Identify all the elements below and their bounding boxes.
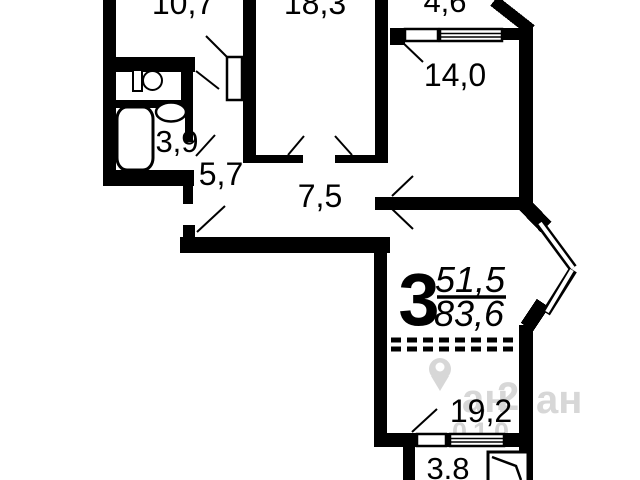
watermark-pin-icon: [436, 363, 445, 372]
floor-plan-canvas: ан 2 ан 010: [0, 0, 640, 480]
label-bedroom: 14,0: [424, 57, 486, 93]
bay-window-glass-core: [540, 223, 573, 268]
sink-icon: [156, 103, 186, 122]
wall-segment: [115, 57, 195, 72]
total-area: 83,6: [434, 293, 505, 334]
label-kitchen: 10,7: [152, 0, 214, 21]
wall-diagonal: [494, 1, 531, 30]
label-loggia-bottom: 3.8: [426, 451, 469, 480]
door-swing: [335, 136, 352, 155]
wall-segment: [519, 325, 533, 447]
wall-segment: [519, 38, 533, 210]
door-leaf: [227, 57, 242, 100]
bay-window: [539, 222, 573, 313]
label-hall-small: 5,7: [199, 156, 243, 192]
wall-segment: [181, 72, 193, 102]
door-swing: [391, 208, 413, 229]
window: [440, 29, 502, 41]
wall-segment: [387, 433, 417, 447]
wall-segment: [375, 197, 532, 210]
door-swing: [288, 136, 304, 155]
vent-window-icon: [488, 452, 528, 480]
wall-segment: [180, 237, 390, 253]
dashed-partition: [391, 340, 519, 349]
bay-window-glass-core: [547, 270, 572, 312]
watermark-text-right: ан: [536, 378, 582, 422]
label-bathroom: 3,9: [155, 124, 198, 159]
wall-segment: [374, 237, 387, 447]
door-swing: [392, 176, 413, 196]
bay-wall-stub: [527, 303, 543, 327]
wall-segment: [183, 225, 195, 239]
wall-segment: [103, 0, 116, 186]
wall-segment: [403, 447, 415, 480]
toilet-icon: [143, 71, 162, 90]
apartment-summary: 3 51,5 83,6: [398, 258, 506, 341]
label-hall: 7,5: [298, 178, 342, 214]
door-swing: [206, 36, 227, 57]
wall-segment: [243, 155, 303, 163]
door-swing: [400, 40, 423, 62]
balcony-door-opening: [405, 29, 438, 41]
floor-plan: ан 2 ан 010: [0, 0, 640, 480]
wall-segment: [375, 0, 388, 163]
label-loggia-top: 4,6: [423, 0, 466, 19]
bathtub-icon: [117, 107, 153, 170]
entrance-door-swing: [197, 206, 225, 232]
wall-segment: [183, 186, 193, 204]
wall-segment: [103, 170, 194, 186]
toilet-icon: [133, 70, 142, 91]
door-swing: [412, 409, 437, 432]
watermark-pin-icon: [431, 376, 449, 391]
label-living-room: 18,3: [284, 0, 346, 21]
balcony-door-opening: [417, 434, 446, 446]
wall-segment: [243, 0, 256, 163]
door-swing: [196, 71, 219, 89]
window: [450, 434, 504, 446]
label-room-large: 19,2: [450, 393, 512, 429]
door-swing: [196, 135, 215, 156]
